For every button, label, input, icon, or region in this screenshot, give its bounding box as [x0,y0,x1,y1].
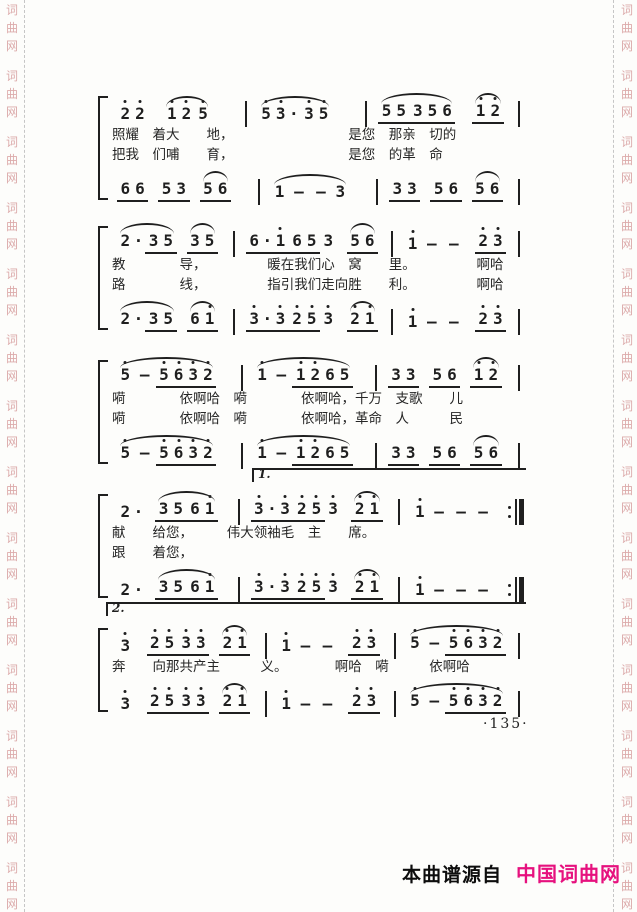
octave-dot [496,227,499,230]
note: 3 [273,310,288,328]
beam-group: 23 [348,692,379,714]
watermark-character: 网 [6,502,18,515]
watermark-character: 曲 [6,154,18,167]
note: 6 [133,180,148,198]
note-part: 3 [320,310,337,329]
note-part: 12 [163,105,194,124]
repeat-dot [508,506,511,509]
note-group: 2533 [147,692,210,714]
octave-dot [168,629,171,632]
note: 5 [473,180,488,198]
note-part: 3 [117,637,134,656]
spacer [388,599,393,600]
watermark-group: 词曲网 [621,202,633,251]
note-part: – [472,503,494,522]
watermark-group: 词曲网 [6,730,18,779]
slur-group: 55356 [378,102,455,124]
rest-dash: – [429,581,449,599]
octave-dot [315,573,318,576]
note: 5 [157,366,172,384]
note-part: – [294,695,316,714]
slur-group: 3561 [155,500,218,522]
note: 3 [156,500,171,518]
thick-bar [519,499,524,525]
note: 1 [164,105,179,123]
rest-dash: – [135,366,155,384]
octave-dot [265,100,268,103]
octave-dot [177,439,180,442]
score-system-1: 2212553·355535612照耀 着大 地， 是您 那亲 切的把我 们哺 … [112,86,526,202]
lyric-line-2: 路 线， 指引我们走向胜 利。 啊哈 [112,277,526,294]
note: 5 [431,180,446,198]
augmentation-dot: · [288,105,300,123]
octave-dot [452,687,455,690]
octave-dot [492,361,495,364]
barline [518,633,520,659]
watermark-character: 网 [621,304,633,317]
note-group: 3 [117,695,134,714]
watermark-character: 网 [6,370,18,383]
note: 3 [490,232,505,250]
note: 3 [186,366,201,384]
thin-bar [515,577,517,603]
spacer [337,123,359,124]
note-group: 1–– [278,637,339,656]
note: 5 [425,102,440,120]
note: 6 [171,366,186,384]
note-part: 1 [411,503,428,522]
note: 3 [321,310,336,328]
note: 6 [323,444,338,462]
octave-dot [496,629,499,632]
note: 2 [476,310,491,328]
note: 3 [188,232,203,250]
barline [518,443,520,469]
lower-voice-notes: 32533211––235–5632 [112,676,526,714]
octave-dot [257,573,260,576]
octave-dot [413,687,416,690]
rest-dash: – [295,637,315,655]
note: 5 [304,310,319,328]
note-part: – [423,634,445,653]
watermark-character: 网 [6,700,18,713]
note: 3 [364,692,379,710]
watermark-character: 词 [6,796,18,809]
note-part: – [423,692,445,711]
note: 1 [471,366,486,384]
watermark-character: 网 [6,568,18,581]
beam-group: 56 [430,180,461,202]
slur-group: 56 [472,180,503,202]
note: 5 [159,180,174,198]
barline [518,179,520,205]
note: 6 [461,634,476,652]
barline [518,231,520,257]
watermark-character: 曲 [6,418,18,431]
octave-dot [284,495,287,498]
watermark-group: 词曲网 [621,4,633,53]
watermark-character: 网 [621,634,633,647]
watermark-character: 曲 [621,418,633,431]
note: 2 [348,310,363,328]
watermark-character: 网 [621,898,633,911]
watermark-group: 词曲网 [6,796,18,845]
octave-dot [153,629,156,632]
octave-dot [208,495,211,498]
octave-dot [202,100,205,103]
watermark-character: 词 [621,400,633,413]
octave-dot [124,632,127,635]
repeat-dot [508,515,511,518]
note: 3 [333,183,348,201]
score-system-3: 5–56321–1265335612嗬 依啊哈 嗬 依啊哈，千万 支歌 儿嗬 依… [112,350,526,466]
beam-group: 56 [429,444,460,466]
watermark-character: 网 [6,238,18,251]
watermark-character: 网 [621,766,633,779]
augmentation-dot: · [261,232,273,250]
note: 1 [255,444,270,462]
note-group: 2· [117,503,145,522]
note: 5 [259,105,274,123]
note: 1 [235,634,250,652]
watermark-character: 曲 [6,286,18,299]
note: 1 [273,232,288,250]
note-part: 5 [117,444,134,463]
note-group: 23 [348,692,379,714]
note: 2 [201,366,216,384]
watermark-group: 词曲网 [6,268,18,317]
watermark-group: 词曲网 [6,466,18,515]
note-group: 23 [475,232,506,254]
slur-group: 1–1265 [254,444,353,466]
augmentation-dot: · [133,310,145,328]
octave-dot [206,361,209,364]
note: 5 [379,102,394,120]
watermark-group: 词曲网 [6,70,18,119]
octave-dot [418,576,421,579]
note: 6 [440,102,455,120]
watermark-character: 词 [6,70,18,83]
note: 3 [390,180,405,198]
lyric-line-1: 教 导， 暖在我们心 窝 里。 啊哈 [112,257,526,274]
watermark-character: 网 [621,238,633,251]
note: 2 [179,105,194,123]
note: 2 [148,692,163,710]
note: 5 [348,232,363,250]
augmentation-dot: · [133,232,145,250]
watermark-character: 网 [621,40,633,53]
note: 6 [446,180,461,198]
octave-dot [261,361,264,364]
note: 5 [309,578,324,596]
watermark-character: 曲 [621,880,633,893]
watermark-character: 词 [6,532,18,545]
footer-brand-link[interactable]: 中国词曲网 [516,864,621,886]
note: 3 [476,634,491,652]
spacer [511,331,512,332]
note: 6 [247,232,262,250]
rest-dash: – [317,695,337,713]
note-group: 66 [117,180,148,202]
watermark-character: 词 [621,796,633,809]
octave-dot [206,439,209,442]
rest-dash: – [473,581,493,599]
slur-group: 56 [347,232,378,254]
slur-group: 5–5632 [407,634,506,656]
watermark-character: 曲 [621,616,633,629]
note-group: 3·3253 [251,578,342,600]
octave-dot [177,361,180,364]
note: 2 [118,503,133,521]
note: 6 [171,444,186,462]
octave-dot [358,573,361,576]
lyric-line-1: 嗬 依啊哈 嗬 依啊哈，千万 支歌 儿 [112,391,526,408]
spacer [221,465,235,466]
watermark-character: 网 [6,436,18,449]
barline [241,365,243,391]
note: 3 [146,232,161,250]
slur-group: 12 [470,366,501,388]
octave-dot [199,629,202,632]
note-part: 3 [320,232,337,251]
note: 2 [294,578,309,596]
watermark-character: 网 [6,898,18,911]
note-part: 3 [325,500,342,519]
octave-dot [300,573,303,576]
rest-dash: – [317,637,337,655]
note: 6 [445,366,460,384]
note: 5 [309,500,324,518]
watermark-character: 网 [621,370,633,383]
watermark-group: 词曲网 [6,598,18,647]
lyric-line-2: 嗬 依啊哈 嗬 依啊哈，革命 人 民 [112,411,526,428]
note-part: – [316,695,338,714]
octave-dot [296,305,299,308]
note: 2 [290,310,305,328]
octave-dot [368,305,371,308]
octave-dot [496,687,499,690]
dashed-border-right [613,0,614,912]
rest-dash: – [271,366,291,384]
note: 3 [490,310,505,328]
note: 3 [389,444,404,462]
octave-dot [124,439,127,442]
note: 1 [272,183,287,201]
note: 3 [156,578,171,596]
slur-group: 12 [472,102,503,124]
barline [238,577,240,603]
beam-group: 21 [347,310,378,332]
note: 3 [302,105,317,123]
watermark-character: 曲 [621,352,633,365]
note: 5 [157,444,172,462]
note: 6 [188,310,203,328]
watermark-character: 曲 [621,22,633,35]
note: 2 [308,366,323,384]
repeat-end-barline [508,577,524,603]
octave-dot [452,629,455,632]
slur-group: 21 [351,578,382,600]
note-group: 23 [348,634,379,656]
watermark-character: 网 [621,568,633,581]
note: 5 [202,232,217,250]
beam-group: 33 [389,180,420,202]
octave-dot [307,100,310,103]
watermark-character: 网 [621,106,633,119]
beam-group: 21 [219,634,250,656]
slur-group: 2·35 [117,232,177,254]
note-part: 2· [117,503,145,522]
spacer [499,599,502,600]
octave-dot [285,690,288,693]
watermark-character: 词 [621,334,633,347]
octave-dot [208,573,211,576]
note: 5 [118,366,133,384]
spacer [223,521,232,522]
augmentation-dot: · [266,578,278,596]
watermark-group: 词曲网 [6,136,18,185]
watermark-character: 曲 [6,880,18,893]
lyric-line-2: 跟 着您， [112,545,526,562]
beam-group: 56 [429,366,460,388]
barline [375,443,377,469]
note: 2 [118,581,133,599]
octave-dot [170,100,173,103]
note-group: 6·1653 [246,232,337,254]
note: 1 [255,366,270,384]
beam-group: 25 [293,578,324,600]
barline [518,309,520,335]
spacer [511,655,512,656]
note: 5 [171,578,186,596]
note: 2 [294,500,309,518]
watermark-character: 网 [621,502,633,515]
beam-group: 35 [155,578,186,600]
score-system-4: 1.2·35613·3253211–––献 给您， 伟大领袖毛 主 席。跟 着您… [112,468,526,600]
rest-dash: – [451,581,471,599]
note: 5 [162,692,177,710]
note: 2 [220,692,235,710]
note: 3 [247,310,262,328]
watermark-group: 词曲网 [6,862,18,911]
beam-group: 61 [187,500,218,522]
repeat-dots [508,506,511,518]
spacer [223,599,232,600]
watermark-character: 曲 [621,550,633,563]
note: 3 [364,634,379,652]
note-part: – [134,366,156,385]
barline [233,309,235,335]
note: 6 [461,692,476,710]
octave-dot [479,97,482,100]
watermark-character: 网 [6,634,18,647]
barline [391,309,393,335]
slur-group: 21 [219,634,250,656]
octave-dot [467,629,470,632]
thick-bar [519,577,524,603]
barline [398,499,400,525]
beam-group: 53 [158,180,189,202]
note-group: 1–– [278,695,339,714]
spacer [358,465,369,466]
note-part: – [294,637,316,656]
lyric-line-2: 把我 们哺 育， 是您 的革 命 [112,147,526,164]
watermark-character: 曲 [6,484,18,497]
lower-voice-notes: 6653561––3335656 [112,164,526,202]
note: 6 [486,444,501,462]
note: 3 [174,180,189,198]
watermark-character: 网 [621,832,633,845]
note: 2 [220,634,235,652]
note: 2 [148,634,163,652]
watermark-character: 词 [621,202,633,215]
octave-dot [322,100,325,103]
repeat-end-barline [508,499,524,525]
upper-voice-notes: 2212553·355535612 [112,86,526,124]
note: 2 [349,692,364,710]
octave-dot [418,498,421,501]
watermark-character: 词 [621,466,633,479]
note: 2 [118,232,133,250]
slur-group: 1––3 [271,183,348,202]
spacer [385,713,388,714]
watermark-character: 曲 [6,616,18,629]
beam-group: 61 [187,578,218,600]
page-number: ·135· [483,716,529,732]
note-part: – [134,444,156,463]
note-part: 5 [195,105,212,124]
beam-group: 55 [378,102,409,124]
note-part: 1 [254,366,271,385]
octave-dot [185,687,188,690]
spacer [358,387,369,388]
note-part: 2· [117,310,145,329]
note-part: 1 [404,313,421,332]
octave-dot [138,100,141,103]
spacer [507,465,512,466]
octave-dot [253,305,256,308]
beam-group: 23 [348,634,379,656]
volta-label: 1. [258,467,271,481]
beam-group: 23 [475,310,506,332]
barline [241,443,243,469]
note-part: 1 [278,637,295,656]
watermark-character: 词 [6,598,18,611]
upper-voice-notes: 2·35356·1653561––23 [112,216,526,254]
watermark-group: 词曲网 [621,334,633,383]
octave-dot [481,687,484,690]
note: 5 [337,444,352,462]
lower-voice-notes: 2·35613·3253211––– [112,562,526,600]
watermark-group: 词曲网 [621,598,633,647]
note: 5 [471,444,486,462]
note-group: 23 [475,310,506,332]
rest-dash: – [271,444,291,462]
spacer [354,201,370,202]
beam-group: 66 [117,180,148,202]
slur-group: 125 [163,105,211,124]
watermark-group: 词曲网 [621,796,633,845]
beam-group: 65 [289,232,320,254]
note-group: 53 [158,180,189,202]
barline [365,101,367,127]
lower-voice-notes: 2·35613·3253211––23 [112,294,526,332]
upper-voice-notes: 32533211––235–5632 [112,618,526,656]
note-part: – [428,503,450,522]
note-part: 5 [117,366,134,385]
watermark-character: 曲 [621,220,633,233]
watermark-character: 曲 [6,352,18,365]
